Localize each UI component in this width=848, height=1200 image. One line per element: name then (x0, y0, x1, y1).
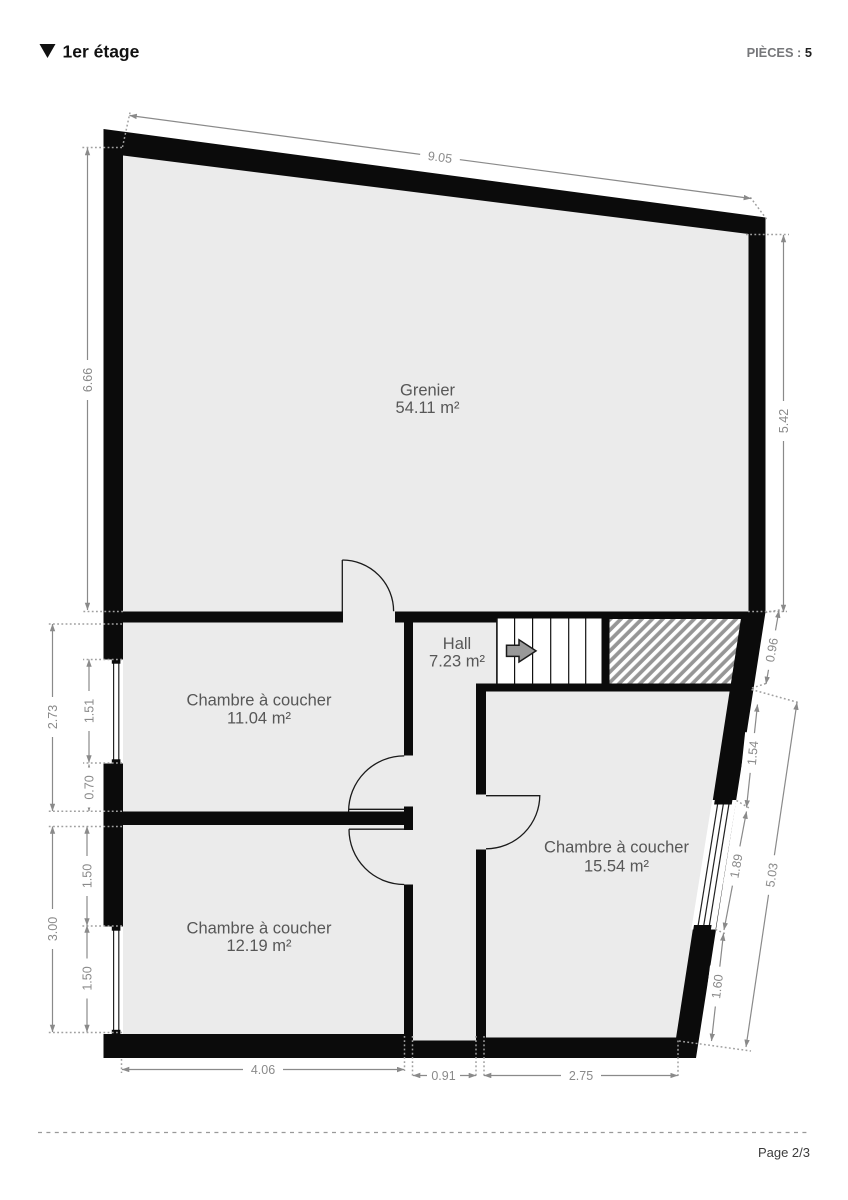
svg-text:Chambre à coucher: Chambre à coucher (187, 920, 332, 938)
svg-text:Page 2/3: Page 2/3 (758, 1145, 810, 1160)
svg-text:2.73: 2.73 (46, 705, 60, 729)
svg-text:1.51: 1.51 (83, 699, 97, 723)
svg-text:1.50: 1.50 (81, 864, 95, 888)
svg-text:12.19 m²: 12.19 m² (226, 937, 292, 955)
svg-text:1er étage: 1er étage (63, 42, 140, 62)
svg-text:1.60: 1.60 (709, 974, 726, 1000)
svg-text:1.50: 1.50 (81, 966, 95, 990)
svg-text:Grenier: Grenier (400, 382, 456, 400)
svg-text:15.54 m²: 15.54 m² (584, 858, 650, 876)
svg-text:Chambre à coucher: Chambre à coucher (544, 839, 689, 857)
svg-text:Chambre à coucher: Chambre à coucher (187, 692, 332, 710)
svg-text:7.23 m²: 7.23 m² (429, 653, 485, 671)
svg-text:5.42: 5.42 (777, 409, 791, 433)
svg-text:2.75: 2.75 (569, 1069, 593, 1083)
svg-text:1.54: 1.54 (745, 740, 761, 766)
svg-text:0.70: 0.70 (83, 775, 97, 799)
svg-text:PIÈCES : 5: PIÈCES : 5 (747, 45, 812, 60)
svg-text:4.06: 4.06 (251, 1063, 275, 1077)
svg-text:0.91: 0.91 (431, 1069, 455, 1083)
svg-text:54.11 m²: 54.11 m² (396, 399, 460, 417)
svg-text:3.00: 3.00 (46, 917, 60, 941)
svg-text:11.04 m²: 11.04 m² (227, 710, 291, 728)
svg-text:Hall: Hall (443, 635, 471, 653)
svg-text:6.66: 6.66 (81, 368, 95, 392)
